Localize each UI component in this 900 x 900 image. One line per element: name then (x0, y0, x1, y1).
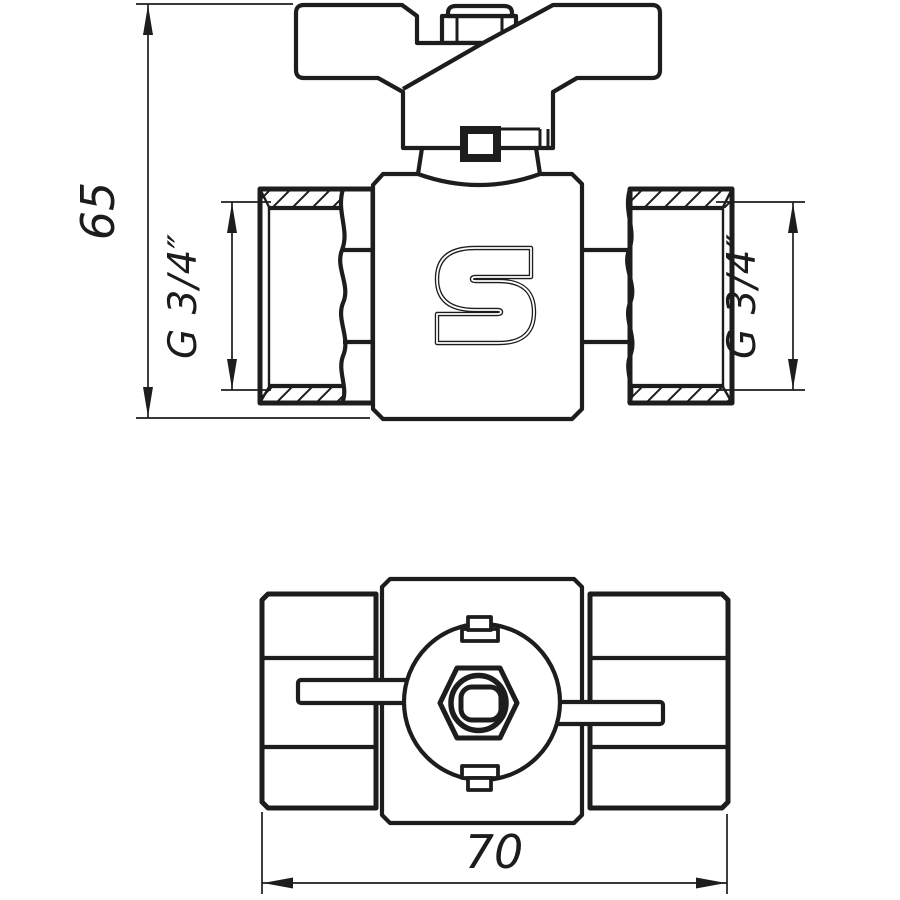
front-view (248, 5, 747, 419)
ball-valve-technical-drawing: 65 G 3/4″ G 3/4″ (0, 0, 900, 900)
dimension-thread-left: G 3/4″ (161, 202, 271, 390)
arrowhead-up (143, 5, 153, 35)
arrowhead-down (788, 359, 798, 389)
stop-tab-top (462, 617, 498, 641)
stem-hex-nut (440, 668, 517, 738)
arrowhead-right (696, 878, 726, 889)
dim-label-thread-left: G 3/4″ (161, 233, 206, 359)
arrowhead-down (143, 387, 153, 417)
handle-arm-right (548, 702, 663, 724)
stem-square (464, 130, 497, 158)
cap-top (448, 6, 512, 16)
arrowhead-up (788, 203, 798, 233)
dim-label-overall-width: 70 (465, 825, 524, 879)
drawing-canvas: 65 G 3/4″ G 3/4″ (0, 0, 900, 900)
dimension-overall-width: 70 (262, 812, 727, 894)
arrowhead-left (263, 878, 293, 889)
dim-label-overall-height: 65 (71, 182, 125, 241)
arrowhead-down (227, 359, 237, 389)
arrowhead-up (227, 203, 237, 233)
valve-body (373, 174, 582, 419)
stem-end (461, 687, 501, 720)
dim-label-thread-right: G 3/4″ (720, 233, 765, 359)
handle-arm-left (298, 680, 414, 703)
left-port (248, 185, 373, 409)
stop-tab-bottom (462, 766, 498, 790)
plan-view (262, 579, 728, 823)
